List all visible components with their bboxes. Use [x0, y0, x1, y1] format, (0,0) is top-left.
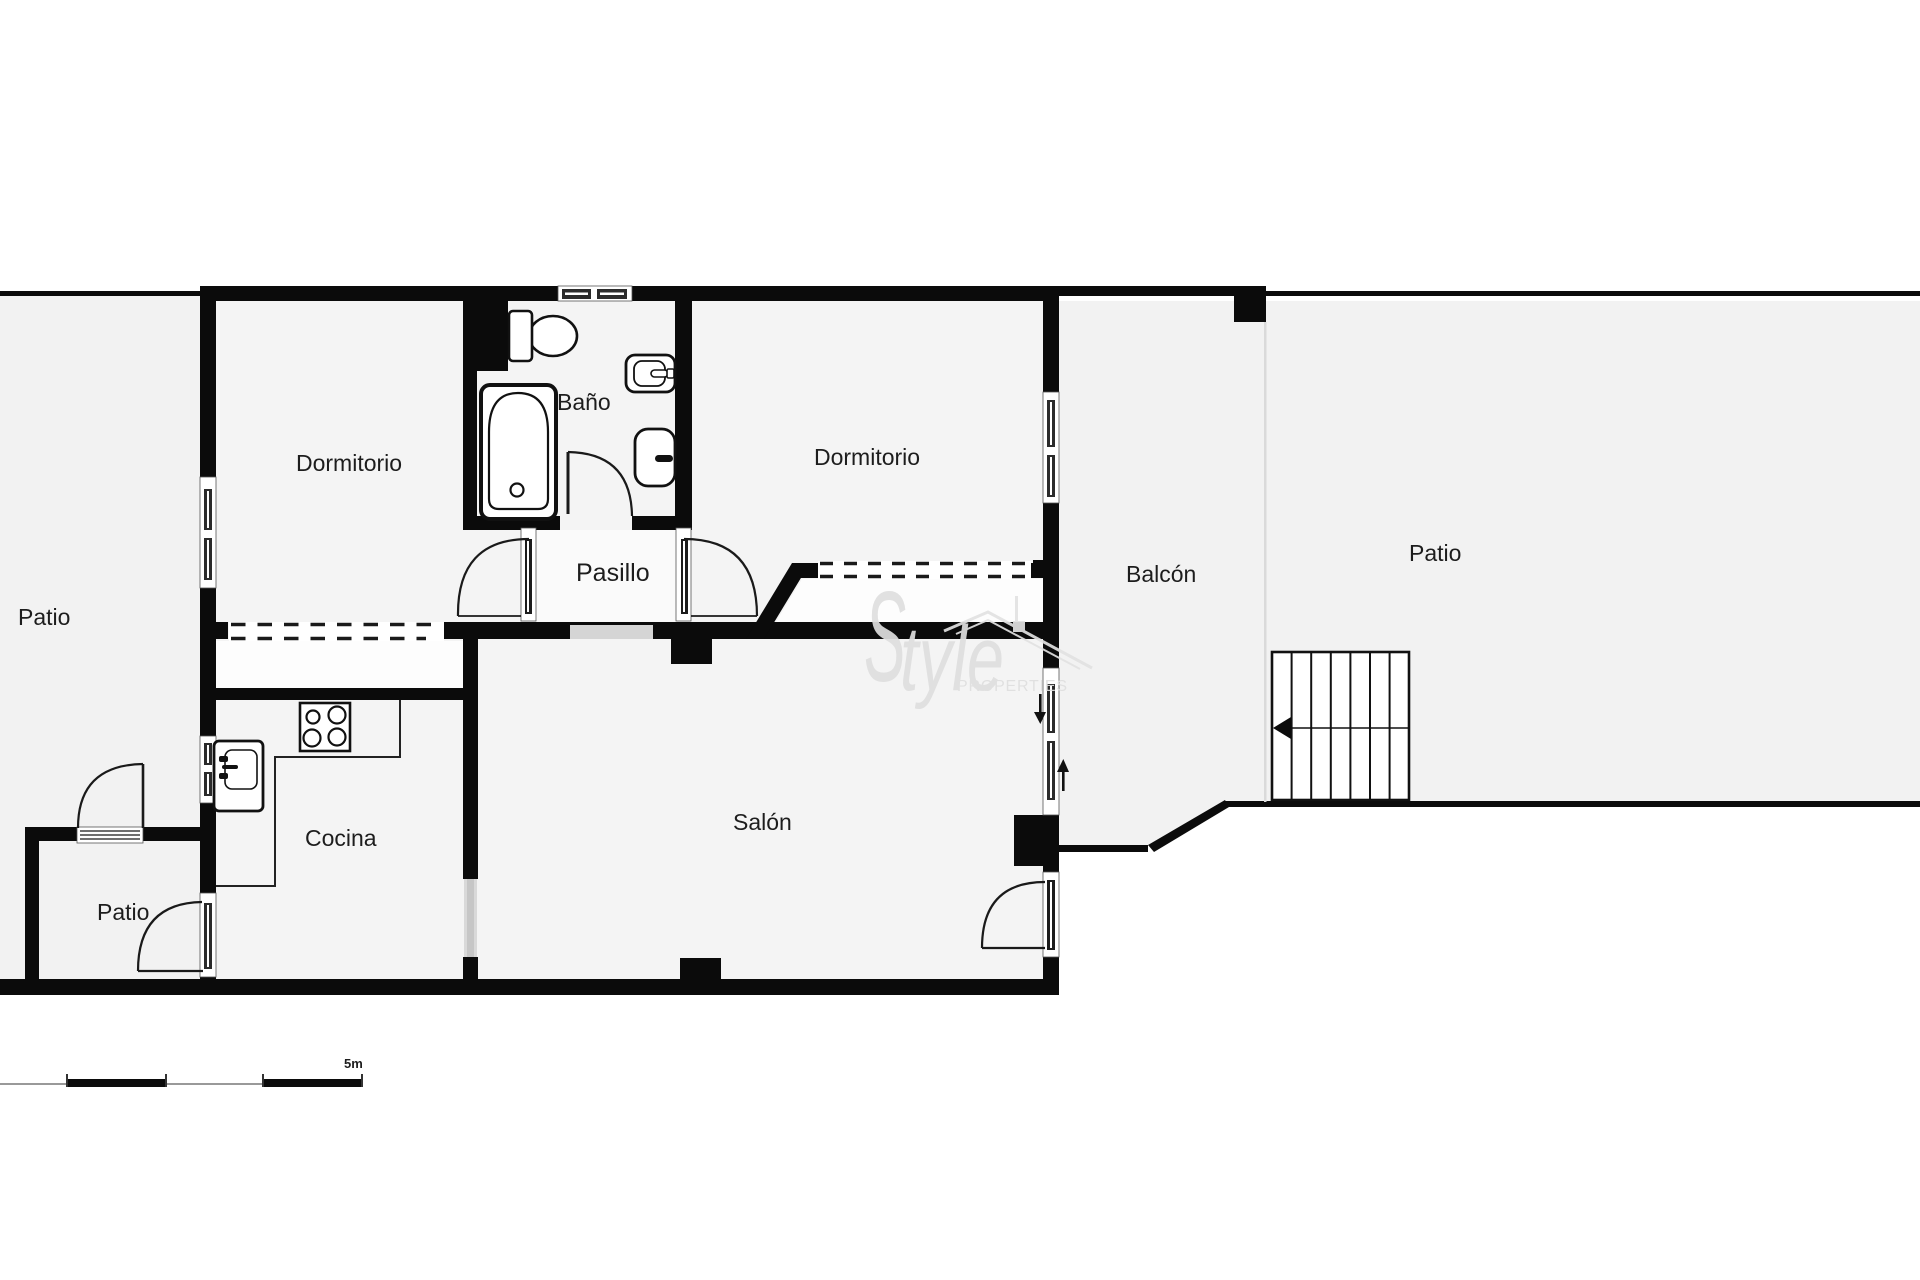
- svg-text:5m: 5m: [344, 1056, 363, 1071]
- svg-text:PROPERTIES: PROPERTIES: [957, 678, 1070, 695]
- svg-text:Patio: Patio: [18, 604, 70, 630]
- svg-text:Patio: Patio: [1409, 540, 1461, 566]
- svg-text:Cocina: Cocina: [305, 825, 377, 851]
- svg-text:Patio: Patio: [97, 899, 149, 925]
- svg-text:Pasillo: Pasillo: [576, 559, 650, 587]
- svg-text:Baño: Baño: [557, 389, 611, 415]
- svg-text:Dormitorio: Dormitorio: [296, 450, 402, 476]
- svg-text:Balcón: Balcón: [1126, 561, 1196, 587]
- svg-text:Dormitorio: Dormitorio: [814, 444, 920, 470]
- svg-text:Salón: Salón: [733, 809, 792, 835]
